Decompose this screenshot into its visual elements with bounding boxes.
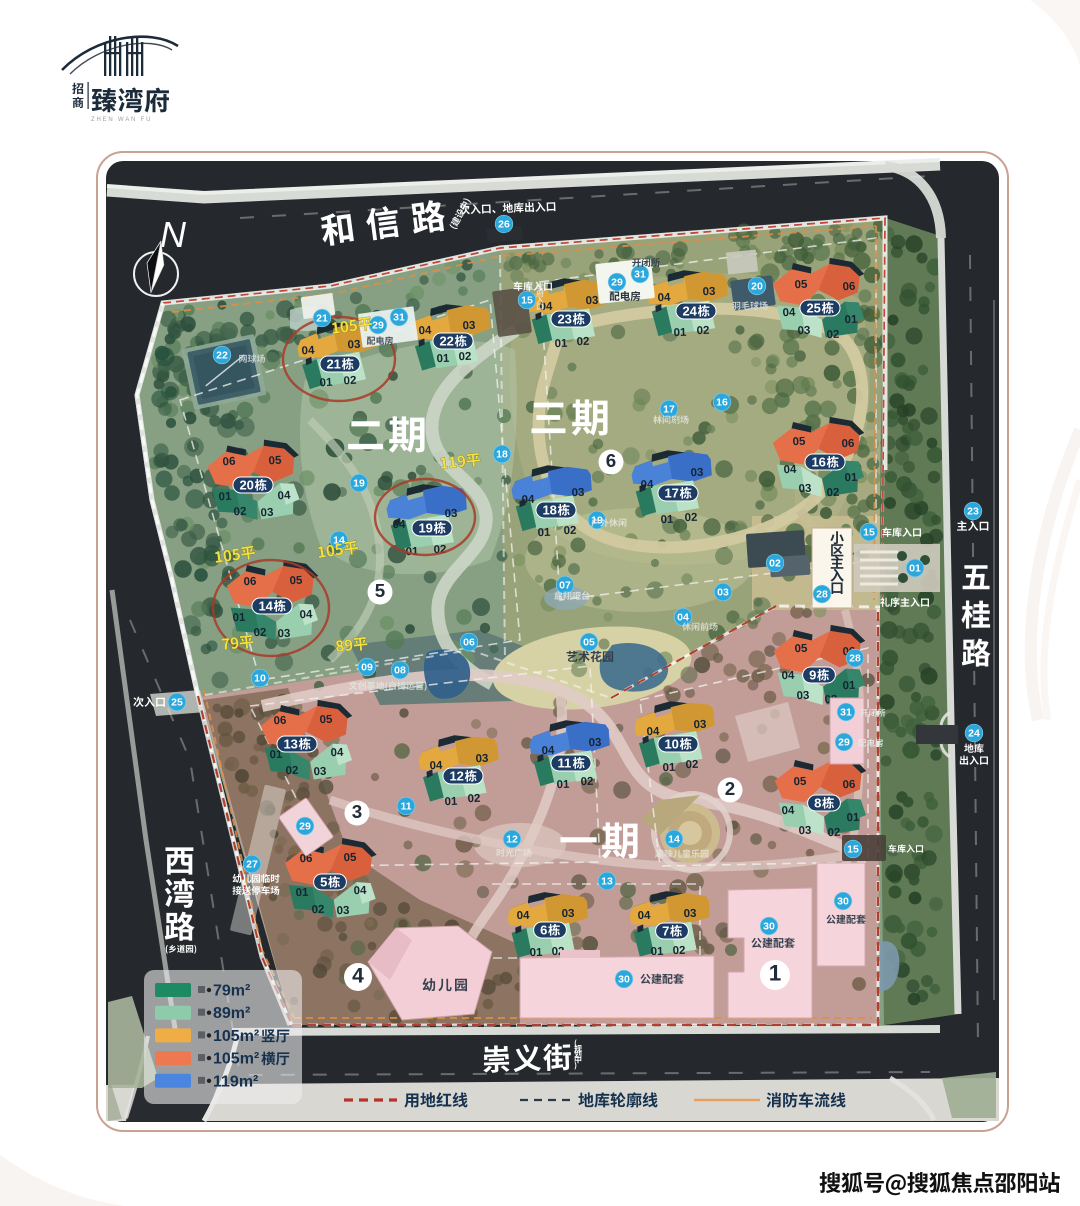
svg-text:01: 01 <box>444 796 458 809</box>
svg-text:18: 18 <box>542 503 556 518</box>
svg-text:10: 10 <box>664 737 678 752</box>
svg-text:25: 25 <box>806 301 820 316</box>
svg-text:03: 03 <box>313 766 326 779</box>
svg-text:15: 15 <box>521 295 533 307</box>
svg-text:02: 02 <box>696 325 709 337</box>
svg-text:30: 30 <box>763 921 775 933</box>
svg-text:03: 03 <box>717 587 729 599</box>
svg-text:02: 02 <box>827 827 840 840</box>
svg-text:11: 11 <box>557 756 571 771</box>
svg-text:119m²: 119m² <box>213 1073 258 1090</box>
svg-text:6: 6 <box>540 923 547 938</box>
svg-text:04: 04 <box>637 910 651 922</box>
svg-text:04: 04 <box>299 609 313 622</box>
svg-text:04: 04 <box>657 292 671 304</box>
svg-text:16: 16 <box>811 455 825 470</box>
svg-text:31: 31 <box>840 707 852 719</box>
svg-text:05: 05 <box>794 643 808 656</box>
svg-text:02: 02 <box>563 525 576 537</box>
svg-text:05: 05 <box>343 852 357 864</box>
svg-text:8: 8 <box>814 796 821 811</box>
svg-text:N: N <box>160 214 187 255</box>
svg-text:1: 1 <box>769 961 782 986</box>
svg-text:01: 01 <box>660 514 674 526</box>
svg-text:08: 08 <box>394 665 406 677</box>
svg-text:03: 03 <box>475 753 488 766</box>
svg-text:01: 01 <box>556 779 570 791</box>
svg-text:03: 03 <box>585 295 598 307</box>
svg-text:29: 29 <box>372 320 384 332</box>
svg-text:01: 01 <box>537 527 551 539</box>
svg-text:03: 03 <box>798 825 811 838</box>
svg-text:15: 15 <box>863 527 875 539</box>
svg-text:04: 04 <box>521 494 535 506</box>
svg-text:04: 04 <box>781 670 795 683</box>
svg-text:01: 01 <box>844 314 858 327</box>
svg-text:01: 01 <box>842 680 856 693</box>
svg-text:23: 23 <box>557 312 571 327</box>
svg-text:11: 11 <box>400 801 411 813</box>
svg-text:12: 12 <box>506 834 518 846</box>
svg-text:21: 21 <box>316 313 328 325</box>
svg-text:28: 28 <box>816 589 828 601</box>
svg-text:04: 04 <box>782 307 796 320</box>
svg-text:24: 24 <box>968 728 980 740</box>
svg-text:03: 03 <box>683 908 696 920</box>
svg-text:03: 03 <box>796 690 809 703</box>
svg-text:06: 06 <box>841 438 854 451</box>
svg-text:01: 01 <box>319 377 333 390</box>
svg-text:01: 01 <box>295 887 309 899</box>
svg-text:03: 03 <box>277 628 290 641</box>
svg-text:01: 01 <box>846 812 860 825</box>
svg-text:01: 01 <box>909 563 921 575</box>
svg-text:17: 17 <box>664 486 678 501</box>
svg-text:03: 03 <box>702 286 715 298</box>
svg-text:14: 14 <box>258 599 273 614</box>
svg-text:05: 05 <box>794 279 808 292</box>
svg-text:04: 04 <box>781 805 795 818</box>
svg-text:20: 20 <box>239 478 253 493</box>
svg-text:03: 03 <box>260 507 273 520</box>
svg-text:02: 02 <box>253 627 266 640</box>
svg-text:30: 30 <box>837 896 849 908</box>
svg-text:02: 02 <box>467 793 480 806</box>
svg-text:02: 02 <box>580 776 593 788</box>
svg-text:22: 22 <box>216 350 228 362</box>
svg-text:04: 04 <box>640 479 654 491</box>
svg-text:02: 02 <box>233 506 246 519</box>
svg-text:04: 04 <box>646 726 660 739</box>
svg-text:31: 31 <box>393 312 405 324</box>
svg-text:04: 04 <box>429 760 443 773</box>
svg-text:25: 25 <box>171 697 183 709</box>
svg-text:03: 03 <box>444 508 457 520</box>
svg-text:02: 02 <box>684 512 697 524</box>
svg-text:04: 04 <box>330 747 344 760</box>
svg-text:4: 4 <box>352 964 364 987</box>
svg-text:05: 05 <box>792 436 806 449</box>
svg-text:06: 06 <box>243 576 256 589</box>
svg-text:27: 27 <box>246 859 258 871</box>
svg-text:29: 29 <box>299 821 311 833</box>
svg-text:02: 02 <box>285 765 298 778</box>
svg-text:06: 06 <box>842 779 855 792</box>
svg-text:28: 28 <box>849 653 861 665</box>
svg-text:13: 13 <box>283 737 297 752</box>
svg-text:13: 13 <box>601 876 613 888</box>
svg-text:21: 21 <box>326 357 340 372</box>
svg-text:04: 04 <box>539 301 553 313</box>
svg-text:01: 01 <box>232 612 246 625</box>
svg-text:02: 02 <box>343 375 356 388</box>
svg-text:7: 7 <box>662 924 669 939</box>
svg-text:01: 01 <box>673 327 687 339</box>
svg-text:03: 03 <box>690 467 703 479</box>
svg-text:105m²: 105m² <box>213 1028 259 1045</box>
svg-text:26: 26 <box>498 219 510 231</box>
svg-text:12: 12 <box>449 769 463 784</box>
svg-text:04: 04 <box>353 885 367 897</box>
svg-text:24: 24 <box>682 304 697 319</box>
svg-text:15: 15 <box>847 844 859 856</box>
svg-text:04: 04 <box>516 910 530 922</box>
svg-text:20: 20 <box>751 281 763 293</box>
svg-text:03: 03 <box>336 905 349 917</box>
svg-text:22: 22 <box>439 334 453 349</box>
svg-text:03: 03 <box>347 339 360 352</box>
svg-text:5: 5 <box>320 875 327 890</box>
svg-text:ZHEN WAN FU: ZHEN WAN FU <box>91 117 152 123</box>
svg-text:06: 06 <box>463 637 475 649</box>
svg-text:105m²: 105m² <box>213 1051 259 1068</box>
svg-text:2: 2 <box>725 778 735 799</box>
svg-text:07: 07 <box>559 580 571 592</box>
svg-text:18: 18 <box>496 449 508 461</box>
svg-text:05: 05 <box>319 714 333 727</box>
svg-text:02: 02 <box>458 351 471 364</box>
svg-text:02: 02 <box>311 904 324 916</box>
svg-text:03: 03 <box>797 325 810 338</box>
svg-text:04: 04 <box>392 519 406 531</box>
svg-text:29: 29 <box>838 737 850 749</box>
svg-text:01: 01 <box>436 353 450 366</box>
svg-text:17: 17 <box>663 404 675 416</box>
svg-text:03: 03 <box>462 320 475 333</box>
svg-text:01: 01 <box>554 338 568 350</box>
svg-text:01: 01 <box>218 491 232 504</box>
svg-text:05: 05 <box>583 637 595 649</box>
svg-text:10: 10 <box>254 673 266 685</box>
svg-text:06: 06 <box>222 456 235 469</box>
svg-text:05: 05 <box>289 575 303 588</box>
svg-text:19: 19 <box>418 521 432 536</box>
svg-text:31: 31 <box>634 269 646 281</box>
svg-text:03: 03 <box>571 487 584 499</box>
svg-text:02: 02 <box>685 759 698 772</box>
svg-text:16: 16 <box>716 397 728 409</box>
svg-text:29: 29 <box>611 277 623 289</box>
svg-text:01: 01 <box>662 762 676 775</box>
svg-text:9: 9 <box>809 668 816 683</box>
svg-text:04: 04 <box>301 345 315 358</box>
svg-text:01: 01 <box>844 472 858 485</box>
svg-text:02: 02 <box>826 487 839 500</box>
svg-text:06: 06 <box>842 281 855 294</box>
svg-text:04: 04 <box>677 612 689 624</box>
svg-text:03: 03 <box>798 483 811 496</box>
svg-text:14: 14 <box>668 834 680 846</box>
svg-text:04: 04 <box>783 464 797 477</box>
svg-text:6: 6 <box>606 450 616 471</box>
svg-text:02: 02 <box>769 558 781 570</box>
svg-text:23: 23 <box>967 506 979 518</box>
svg-text:04: 04 <box>418 325 432 338</box>
svg-text:02: 02 <box>826 329 839 342</box>
svg-text:02: 02 <box>576 336 589 348</box>
svg-text:89m²: 89m² <box>213 1005 250 1022</box>
svg-text:04: 04 <box>277 490 291 503</box>
svg-text:09: 09 <box>361 662 373 674</box>
svg-text:03: 03 <box>561 908 574 920</box>
svg-text:05: 05 <box>793 776 807 789</box>
svg-text:30: 30 <box>618 974 630 986</box>
svg-text:04: 04 <box>541 745 555 757</box>
svg-text:03: 03 <box>588 737 601 749</box>
svg-text:06: 06 <box>273 715 286 728</box>
svg-text:02: 02 <box>672 945 685 957</box>
svg-text:79m²: 79m² <box>213 983 250 1000</box>
svg-text:19: 19 <box>353 478 365 490</box>
svg-text:03: 03 <box>693 719 706 732</box>
svg-text:05: 05 <box>268 455 282 468</box>
svg-text:5: 5 <box>375 580 385 601</box>
svg-text:3: 3 <box>352 801 362 822</box>
